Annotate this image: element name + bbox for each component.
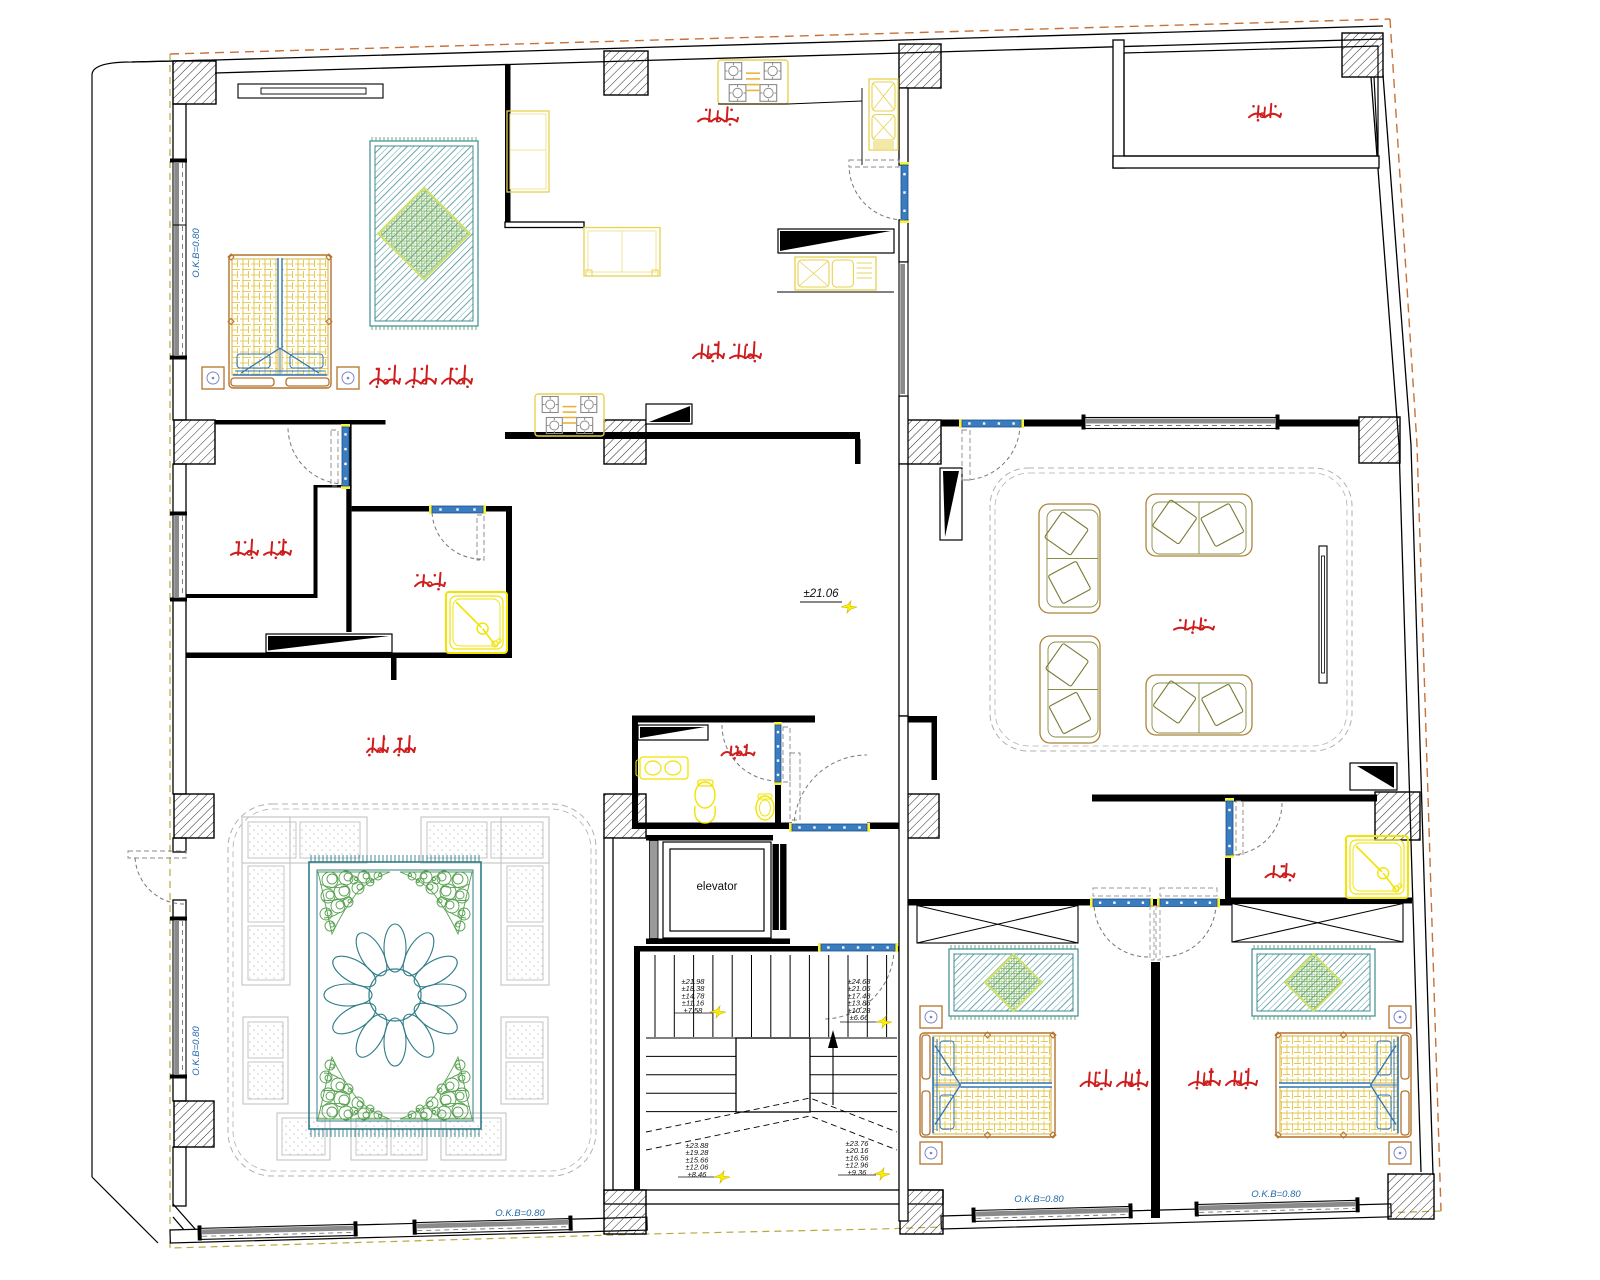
svg-text:±21.06: ±21.06 xyxy=(803,588,839,600)
svg-text:±9.36: ±9.36 xyxy=(848,1168,868,1177)
svg-text:±8.46: ±8.46 xyxy=(688,1170,708,1179)
svg-text:O.K.B=0.80: O.K.B=0.80 xyxy=(191,228,202,278)
svg-text:O.K.B=0.80: O.K.B=0.80 xyxy=(495,1208,545,1219)
svg-text:elevator: elevator xyxy=(697,881,738,893)
svg-text:±6.66: ±6.66 xyxy=(850,1013,870,1022)
svg-text:O.K.B=0.80: O.K.B=0.80 xyxy=(1014,1194,1064,1205)
svg-text:O.K.B=0.80: O.K.B=0.80 xyxy=(1251,1189,1301,1200)
svg-text:±7.58: ±7.58 xyxy=(684,1006,704,1015)
svg-text:O.K.B=0.80: O.K.B=0.80 xyxy=(191,1026,202,1076)
